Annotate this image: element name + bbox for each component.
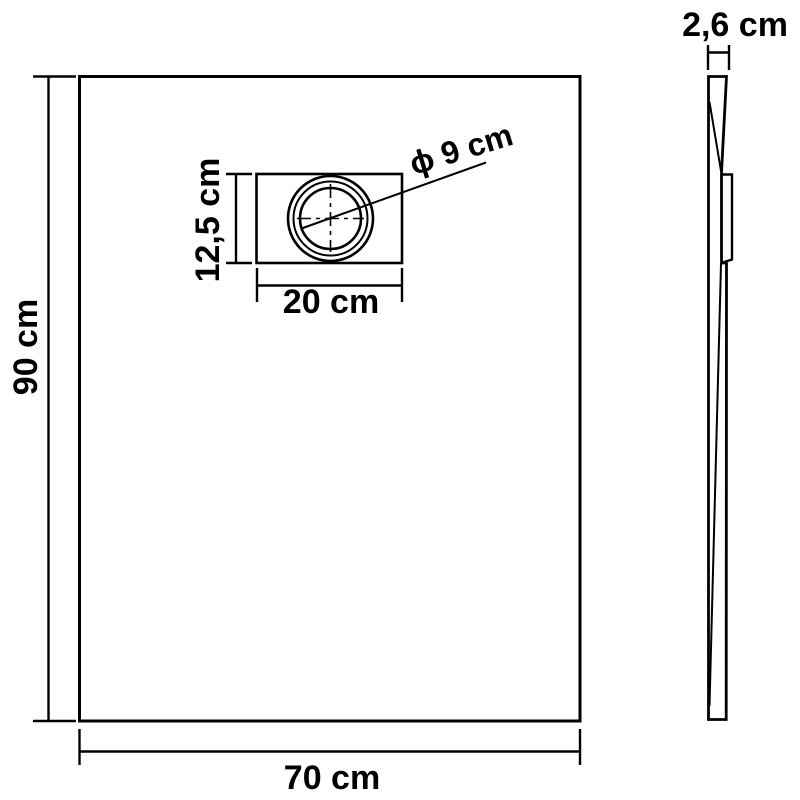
side-view-slope-line-top xyxy=(710,102,722,171)
technical-drawing-canvas: 90 cm 70 cm 12,5 cm 20 cm ϕ 9 cm 2,6 cm xyxy=(0,0,800,800)
drain-height-dimension xyxy=(226,174,252,263)
drain-diameter-leader-line xyxy=(302,163,487,229)
height-dimension xyxy=(33,77,76,722)
drawing-linework xyxy=(0,0,800,800)
side-view-slope-line-long xyxy=(710,264,722,706)
width-dimension-label: 70 cm xyxy=(284,761,380,795)
drain-height-dimension-label: 12,5 cm xyxy=(191,158,225,283)
drain-detail xyxy=(257,163,487,264)
height-dimension-label: 90 cm xyxy=(9,299,43,395)
thickness-dimension xyxy=(708,45,729,70)
thickness-dimension-label: 2,6 cm xyxy=(682,8,788,42)
front-view xyxy=(33,77,580,766)
side-view xyxy=(708,45,732,720)
drain-width-dimension-label: 20 cm xyxy=(283,285,379,319)
